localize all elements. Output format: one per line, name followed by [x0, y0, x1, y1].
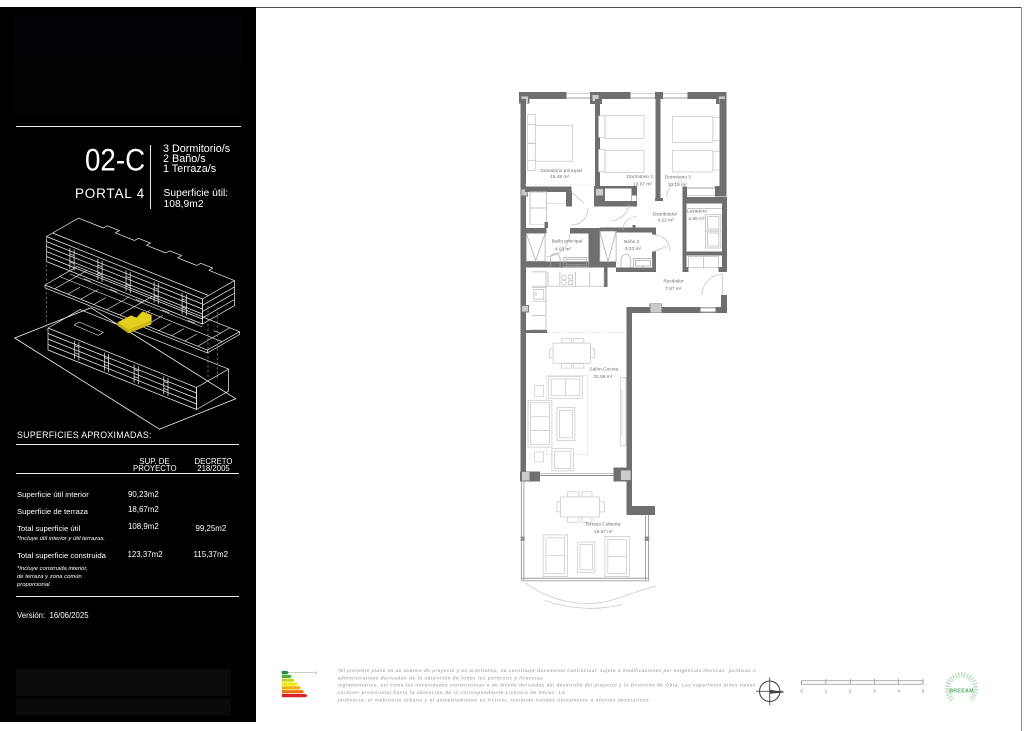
- svg-text:0: 0: [800, 688, 803, 693]
- svg-text:Lavadero: Lavadero: [687, 209, 707, 215]
- svg-text:Terraza Cubierta: Terraza Cubierta: [585, 522, 621, 528]
- svg-text:3.33 m²: 3.33 m²: [625, 246, 642, 252]
- svg-text:32.59 m²: 32.59 m²: [593, 374, 612, 380]
- svg-text:5: 5: [922, 688, 925, 693]
- svg-text:Distribuidor: Distribuidor: [653, 212, 678, 218]
- svg-text:4.22 m²: 4.22 m²: [657, 218, 674, 224]
- svg-text:Recibidor: Recibidor: [663, 278, 684, 284]
- svg-text:*El presente plano es un avanc: *El presente plano es un avance de proye…: [338, 668, 756, 673]
- svg-text:administrativas derivadas de l: administrativas derivadas de la obtenció…: [338, 675, 544, 680]
- svg-text:jardinería, el mobiliario urba: jardinería, el mobiliario urbano y el am…: [337, 697, 650, 702]
- svg-text:Salón-Cocina: Salón-Cocina: [589, 366, 618, 372]
- svg-text:carácter provisional hasta la: carácter provisional hasta la obtención …: [338, 690, 565, 695]
- svg-text:2: 2: [849, 688, 852, 693]
- svg-text:15.48 m²: 15.48 m²: [550, 174, 569, 180]
- svg-text:4.03 m²: 4.03 m²: [555, 246, 572, 252]
- svg-text:A: A: [315, 671, 318, 675]
- svg-text:BREEAM: BREEAM: [949, 688, 974, 694]
- svg-text:1: 1: [825, 688, 828, 693]
- svg-text:18.67 m²: 18.67 m²: [594, 529, 613, 535]
- svg-text:10.19 m²: 10.19 m²: [668, 182, 687, 188]
- svg-text:Baño principal: Baño principal: [552, 239, 582, 245]
- svg-text:4: 4: [897, 688, 900, 693]
- svg-text:7.87 m²: 7.87 m²: [665, 286, 682, 292]
- svg-text:Baño 2: Baño 2: [624, 239, 640, 245]
- svg-text:10.07 m²: 10.07 m²: [633, 182, 652, 188]
- svg-text:Dormitorio principal: Dormitorio principal: [540, 168, 581, 174]
- svg-text:reglamentarios, así como las n: reglamentarios, así como las necesidades…: [338, 683, 756, 688]
- svg-text:Dormitorio 3: Dormitorio 3: [665, 175, 691, 181]
- svg-text:2.65 m²: 2.65 m²: [688, 216, 705, 222]
- svg-text:Dormitorio 2: Dormitorio 2: [627, 174, 653, 180]
- svg-text:3: 3: [873, 688, 876, 693]
